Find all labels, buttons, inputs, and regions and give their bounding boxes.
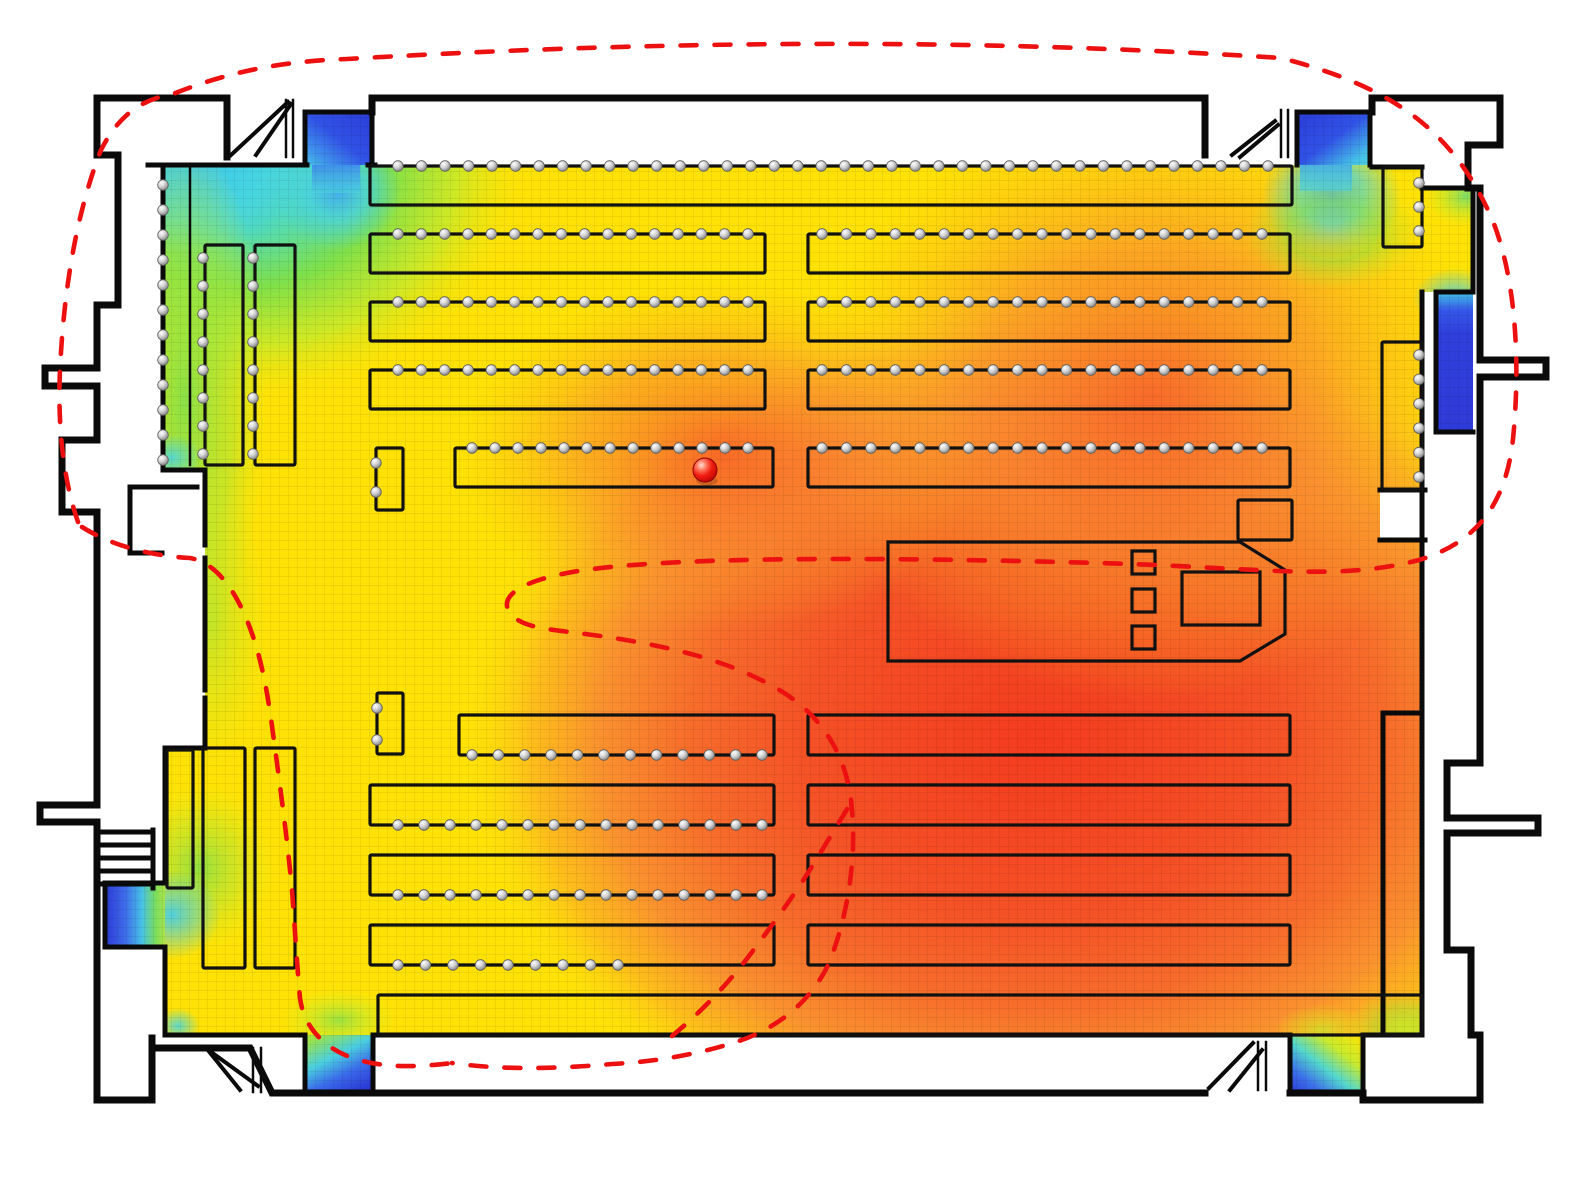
occupant-dot <box>653 820 664 831</box>
occupant-dot <box>910 161 921 172</box>
occupant-dot <box>653 890 664 901</box>
occupant-dot <box>556 365 567 376</box>
occupant-dot <box>513 443 524 454</box>
occupant-dot <box>523 820 534 831</box>
occupant-dot <box>510 161 521 172</box>
wall-notch <box>1380 490 1425 540</box>
door-frame <box>1281 110 1288 157</box>
occupant-dot <box>649 229 660 240</box>
occupant-dot <box>158 205 169 216</box>
occupant-dot <box>509 229 520 240</box>
occupant-dot <box>1110 297 1121 308</box>
occupant-dot <box>1239 161 1250 172</box>
occupant-dot <box>817 443 828 454</box>
occupant-dot <box>198 449 209 460</box>
occupant-dot <box>579 297 590 308</box>
occupant-dot <box>1232 297 1243 308</box>
occupant-dot <box>679 890 690 901</box>
occupant-dot <box>198 253 209 264</box>
occupant-dot <box>604 161 615 172</box>
occupant-dot <box>493 750 504 761</box>
occupant-dot <box>419 890 430 901</box>
occupant-dot <box>957 161 968 172</box>
occupant-dot <box>556 297 567 308</box>
occupant-dot <box>158 380 169 391</box>
occupant-dot <box>886 161 897 172</box>
occupant-dot <box>509 297 520 308</box>
occupant-dot <box>1061 365 1072 376</box>
occupant-dot <box>372 735 383 746</box>
occupant-dot <box>769 161 780 172</box>
occupant-dot <box>673 297 684 308</box>
occupant-dot <box>1134 365 1145 376</box>
occupant-dot <box>1037 297 1048 308</box>
occupant-dot <box>416 229 427 240</box>
occupant-dot <box>1012 229 1023 240</box>
occupant-dot <box>816 161 827 172</box>
occupant-dot <box>1110 229 1121 240</box>
occupant-dot <box>988 365 999 376</box>
occupant-dot <box>1208 443 1219 454</box>
occupant-dot <box>1414 374 1425 385</box>
occupant-dot <box>705 890 716 901</box>
occupant-dot <box>613 960 624 971</box>
occupant-dot <box>601 890 612 901</box>
occupant-dot <box>439 229 450 240</box>
occupant-dot <box>841 365 852 376</box>
occupant-dot <box>981 161 992 172</box>
occupant-dot <box>1183 443 1194 454</box>
occupant-dot <box>579 229 590 240</box>
occupant-dot <box>486 365 497 376</box>
occupant-dot <box>743 297 754 308</box>
occupant-dot <box>627 820 638 831</box>
occupant-dot <box>575 820 586 831</box>
occupant-dot <box>704 750 715 761</box>
occupant-dot <box>743 229 754 240</box>
occupant-dot <box>582 443 593 454</box>
occupant-dot <box>1169 161 1180 172</box>
occupant-dot <box>673 229 684 240</box>
occupant-dot <box>1263 161 1274 172</box>
occupant-dot <box>1122 161 1133 172</box>
floorplan-canvas <box>0 0 1589 1204</box>
occupant-dot <box>1414 399 1425 410</box>
occupant-dot <box>696 365 707 376</box>
occupant-dot <box>248 253 259 264</box>
occupant-dot <box>248 365 259 376</box>
occupant-dot <box>467 443 478 454</box>
occupant-dot <box>1208 229 1219 240</box>
occupant-dot <box>557 161 568 172</box>
inner-wall <box>100 832 153 884</box>
occupant-dot <box>1414 178 1425 189</box>
occupant-dot <box>914 443 925 454</box>
occupant-dot <box>866 297 877 308</box>
occupant-dot <box>1086 229 1097 240</box>
occupant-dot <box>675 161 686 172</box>
occupant-dot <box>914 365 925 376</box>
occupant-dot <box>988 229 999 240</box>
occupant-dot <box>158 405 169 416</box>
occupant-dot <box>448 960 459 971</box>
occupant-dot <box>1208 297 1219 308</box>
occupant-dot <box>1110 443 1121 454</box>
occupant-dot <box>371 458 382 469</box>
occupant-dot <box>628 161 639 172</box>
occupant-dot <box>1061 229 1072 240</box>
occupant-dot <box>1159 365 1170 376</box>
occupant-dot <box>1134 443 1145 454</box>
occupant-dot <box>1159 443 1170 454</box>
occupant-dot <box>628 443 639 454</box>
occupant-dot <box>248 337 259 348</box>
occupant-dot <box>863 161 874 172</box>
occupant-dot <box>1183 365 1194 376</box>
occupant-dot <box>934 161 945 172</box>
occupant-dot <box>626 365 637 376</box>
occupant-dot <box>471 890 482 901</box>
occupant-dot <box>890 443 901 454</box>
occupant-dot <box>651 750 662 761</box>
occupant-dot <box>817 297 828 308</box>
occupant-dot <box>890 229 901 240</box>
occupant-dot <box>1183 229 1194 240</box>
occupant-dot <box>559 443 570 454</box>
occupant-dot <box>651 443 662 454</box>
occupant-dot <box>1075 161 1086 172</box>
floorplan <box>0 0 1589 1204</box>
occupant-dot <box>1086 443 1097 454</box>
occupant-dot <box>730 750 741 761</box>
occupant-dot <box>158 305 169 316</box>
occupant-dot <box>1414 350 1425 361</box>
occupant-dot <box>475 960 486 971</box>
occupant-dot <box>939 443 950 454</box>
occupant-dot <box>817 365 828 376</box>
occupant-dot <box>839 161 850 172</box>
occupant-dot <box>673 365 684 376</box>
occupant-dot <box>792 161 803 172</box>
occupant-dot <box>603 365 614 376</box>
occupant-dot <box>697 443 708 454</box>
occupant-dot <box>486 297 497 308</box>
occupant-dot <box>1414 472 1425 483</box>
occupant-dot <box>158 180 169 191</box>
occupant-dot <box>487 161 498 172</box>
occupant-dot <box>841 297 852 308</box>
occupant-dot <box>393 161 404 172</box>
occupant-dot <box>603 297 614 308</box>
occupant-dot <box>549 890 560 901</box>
occupant-dot <box>601 820 612 831</box>
occupant-dot <box>248 281 259 292</box>
occupant-dot <box>719 297 730 308</box>
occupant-dot <box>1414 447 1425 458</box>
occupant-dot <box>1134 229 1145 240</box>
occupant-dot <box>416 161 427 172</box>
occupant-dot <box>1061 443 1072 454</box>
occupant-dot <box>533 229 544 240</box>
occupant-dot <box>1028 161 1039 172</box>
outer-wall <box>40 155 152 1100</box>
occupant-dot <box>463 297 474 308</box>
door-swing-line <box>1209 1043 1253 1088</box>
occupant-dot <box>546 750 557 761</box>
occupant-dot <box>471 820 482 831</box>
occupant-dot <box>198 281 209 292</box>
occupant-dot <box>372 703 383 714</box>
occupant-dot <box>1004 161 1015 172</box>
occupant-dot <box>817 229 828 240</box>
occupant-dot <box>1232 365 1243 376</box>
occupant-dot <box>626 229 637 240</box>
door-swing-line <box>1240 125 1278 157</box>
occupant-dot <box>866 365 877 376</box>
occupant-dot <box>890 365 901 376</box>
occupant-dot <box>963 297 974 308</box>
occupant-dot <box>1414 226 1425 237</box>
occupant-dot <box>248 421 259 432</box>
occupant-dot <box>572 750 583 761</box>
occupant-dot <box>678 750 689 761</box>
occupant-dot <box>575 890 586 901</box>
occupant-dot <box>605 443 616 454</box>
occupant-dot <box>1061 297 1072 308</box>
occupant-dot <box>371 487 382 498</box>
occupant-dot <box>558 960 569 971</box>
occupant-dot <box>1232 443 1243 454</box>
occupant-dot <box>1037 443 1048 454</box>
occupant-dot <box>497 820 508 831</box>
occupant-dot <box>439 365 450 376</box>
occupant-dot <box>674 443 685 454</box>
occupant-dot <box>1145 161 1156 172</box>
occupant-dot <box>198 421 209 432</box>
occupant-dot <box>158 255 169 266</box>
occupant-dot <box>393 820 404 831</box>
occupant-dot <box>585 960 596 971</box>
occupant-dot <box>698 161 709 172</box>
occupant-dot <box>1086 365 1097 376</box>
occupant-dot <box>1159 229 1170 240</box>
occupant-dot <box>1012 297 1023 308</box>
occupant-dot <box>627 890 638 901</box>
occupant-dot <box>1257 229 1268 240</box>
occupant-dot <box>963 443 974 454</box>
occupant-dot <box>440 161 451 172</box>
occupant-dot <box>625 750 636 761</box>
occupant-dot <box>603 229 614 240</box>
occupant-dot <box>463 161 474 172</box>
occupant-dot <box>696 229 707 240</box>
occupant-dot <box>533 297 544 308</box>
occupant-dot <box>1051 161 1062 172</box>
occupant-dot <box>1208 365 1219 376</box>
occupant-dot <box>731 890 742 901</box>
marker-ball <box>693 458 717 482</box>
occupant-dot <box>651 161 662 172</box>
occupant-dot <box>1037 229 1048 240</box>
occupant-dot <box>743 365 754 376</box>
source-marker <box>693 458 718 485</box>
occupant-dot <box>1257 443 1268 454</box>
occupant-dot <box>963 365 974 376</box>
occupant-dot <box>581 161 592 172</box>
occupant-dot <box>914 297 925 308</box>
occupant-dot <box>719 365 730 376</box>
occupant-dot <box>533 365 544 376</box>
occupant-dot <box>419 820 430 831</box>
occupant-dot <box>393 365 404 376</box>
occupant-dot <box>393 297 404 308</box>
occupant-dot <box>445 820 456 831</box>
occupant-dot <box>757 890 768 901</box>
occupant-dot <box>679 820 690 831</box>
occupant-dot <box>841 229 852 240</box>
occupant-dot <box>722 161 733 172</box>
occupant-dot <box>939 229 950 240</box>
occupant-dot <box>198 393 209 404</box>
occupant-dot <box>890 297 901 308</box>
occupant-dot <box>579 365 590 376</box>
occupant-dot <box>198 365 209 376</box>
occupant-dot <box>720 443 731 454</box>
occupant-dot <box>1159 297 1170 308</box>
occupant-dot <box>1183 297 1194 308</box>
occupant-dot <box>416 365 427 376</box>
occupant-dot <box>599 750 610 761</box>
occupant-dot <box>988 443 999 454</box>
occupant-dot <box>1086 297 1097 308</box>
occupant-dot <box>519 750 530 761</box>
inner-wall <box>130 487 197 550</box>
occupant-dot <box>988 297 999 308</box>
occupant-dot <box>158 330 169 341</box>
occupant-dot <box>556 229 567 240</box>
occupant-dot <box>509 365 520 376</box>
occupant-dot <box>939 297 950 308</box>
occupant-dot <box>198 309 209 320</box>
occupant-dot <box>445 890 456 901</box>
occupant-dot <box>463 229 474 240</box>
occupant-dot <box>439 297 450 308</box>
occupant-dot <box>497 890 508 901</box>
occupant-dot <box>467 750 478 761</box>
occupant-dot <box>158 430 169 441</box>
occupant-dot <box>649 297 660 308</box>
occupant-dot <box>1414 423 1425 434</box>
occupant-dot <box>523 890 534 901</box>
door-swing-line <box>1232 121 1275 155</box>
occupant-dot <box>1192 161 1203 172</box>
occupant-dot <box>416 297 427 308</box>
occupant-dot <box>1012 443 1023 454</box>
occupant-dot <box>1216 161 1227 172</box>
occupant-dot <box>198 337 209 348</box>
occupant-dot <box>841 443 852 454</box>
occupant-dot <box>158 455 169 466</box>
occupant-dot <box>248 449 259 460</box>
occupant-dot <box>1098 161 1109 172</box>
occupant-dot <box>705 820 716 831</box>
occupant-dot <box>626 297 637 308</box>
occupant-dot <box>393 229 404 240</box>
occupant-dot <box>1257 365 1268 376</box>
occupant-dot <box>549 820 560 831</box>
occupant-dot <box>158 355 169 366</box>
occupant-dot <box>1110 365 1121 376</box>
occupant-dot <box>1414 202 1425 213</box>
occupant-dot <box>536 443 547 454</box>
occupant-dot <box>248 393 259 404</box>
occupant-dot <box>393 890 404 901</box>
occupant-dot <box>1012 365 1023 376</box>
occupant-dot <box>914 229 925 240</box>
occupant-dot <box>503 960 514 971</box>
occupant-dot <box>731 820 742 831</box>
occupant-dot <box>530 960 541 971</box>
outer-wall <box>372 98 1205 155</box>
occupant-dot <box>745 161 756 172</box>
occupant-dot <box>719 229 730 240</box>
occupant-dot <box>158 280 169 291</box>
occupant-dot <box>649 365 660 376</box>
occupant-dot <box>963 229 974 240</box>
occupant-dot <box>757 820 768 831</box>
occupant-dot <box>939 365 950 376</box>
occupant-dot <box>420 960 431 971</box>
occupant-dot <box>248 309 259 320</box>
occupant-dot <box>866 443 877 454</box>
occupant-dot <box>1232 229 1243 240</box>
occupant-dot <box>463 365 474 376</box>
occupant-dot <box>534 161 545 172</box>
occupant-dot <box>743 443 754 454</box>
occupant-dot <box>866 229 877 240</box>
occupant-dot <box>1037 365 1048 376</box>
occupant-dot <box>757 750 768 761</box>
occupant-dot <box>1257 297 1268 308</box>
occupant-dot <box>1134 297 1145 308</box>
occupant-dot <box>490 443 501 454</box>
occupant-dot <box>158 230 169 241</box>
occupant-dot <box>393 960 404 971</box>
occupant-dot <box>486 229 497 240</box>
occupant-dot <box>696 297 707 308</box>
